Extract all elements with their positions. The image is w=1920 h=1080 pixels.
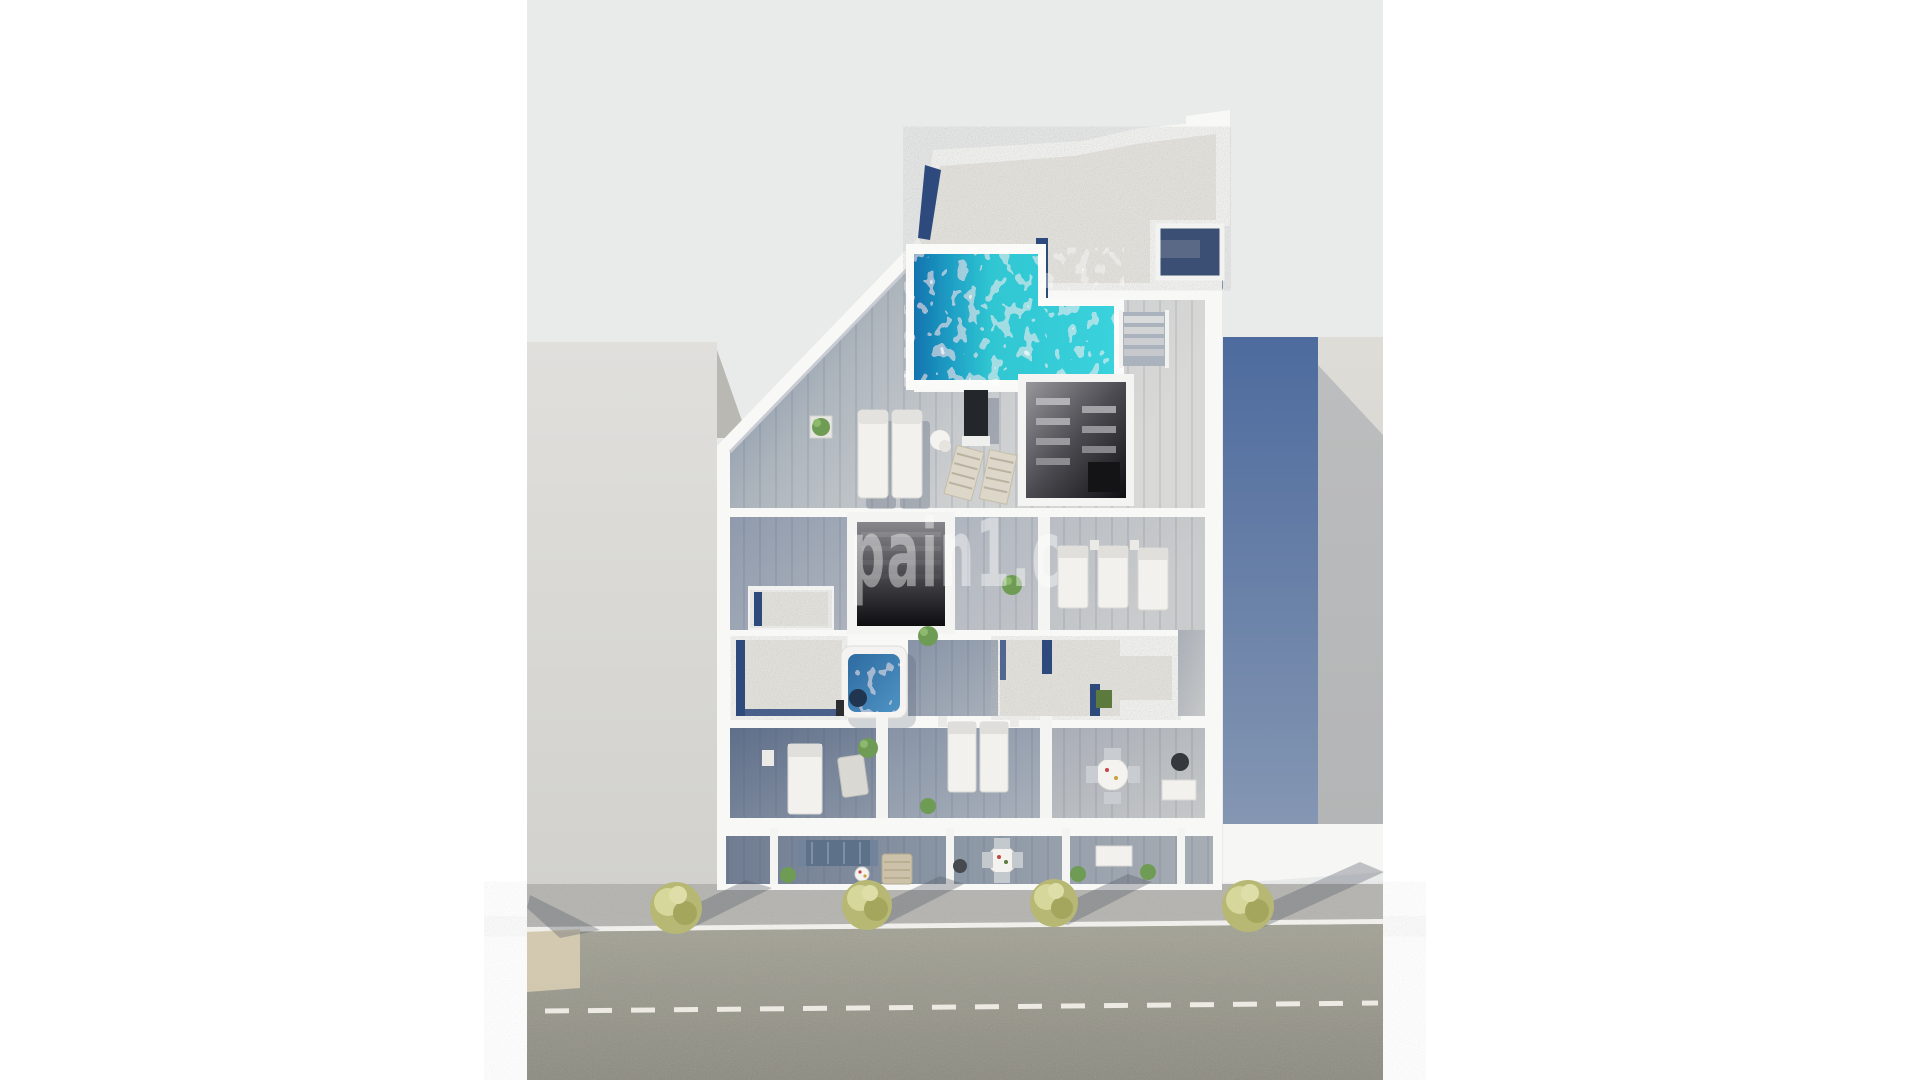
tree-4 bbox=[1222, 880, 1274, 932]
hot-tub-seat bbox=[849, 689, 867, 707]
render-canvas: pain1.c bbox=[0, 0, 1920, 1080]
terrace-plant-1 bbox=[780, 867, 796, 883]
left-neighbor-building bbox=[527, 342, 748, 888]
tv-panel bbox=[962, 390, 999, 446]
screenshot-root: pain1.c bbox=[0, 0, 1920, 1080]
watermark-text: pain1.c bbox=[850, 500, 1062, 609]
ground-terraces bbox=[726, 828, 1213, 884]
plant-top-middle bbox=[918, 626, 938, 646]
terrace-sofa bbox=[798, 840, 878, 866]
sun-lounger-right bbox=[892, 410, 930, 509]
terrace-plant-3 bbox=[1140, 864, 1156, 880]
terrace-desk bbox=[1096, 846, 1132, 866]
small-desk bbox=[1162, 780, 1196, 800]
terrace-side-table bbox=[855, 867, 869, 881]
right-neighbor-building bbox=[1206, 278, 1383, 884]
hot-tub-step bbox=[836, 700, 844, 716]
tree-2 bbox=[842, 880, 892, 930]
sun-lounger-left bbox=[858, 410, 896, 509]
stair-core bbox=[1018, 374, 1134, 506]
deck-stairs bbox=[1119, 310, 1169, 368]
hot-tub bbox=[836, 646, 916, 728]
roof-stair-notch bbox=[1158, 226, 1222, 278]
driveway-apron bbox=[527, 929, 580, 992]
tree-3 bbox=[1030, 879, 1078, 927]
dark-planter bbox=[1171, 753, 1189, 771]
right-neighbor-blue-wall bbox=[1223, 337, 1318, 824]
mid-floor-beds bbox=[1058, 540, 1168, 610]
terrace-daybed bbox=[882, 854, 912, 884]
terrace-plant-2 bbox=[1070, 866, 1086, 882]
tree-1 bbox=[650, 882, 702, 934]
terrace-dark-table bbox=[953, 859, 967, 873]
planter-box bbox=[810, 416, 832, 438]
